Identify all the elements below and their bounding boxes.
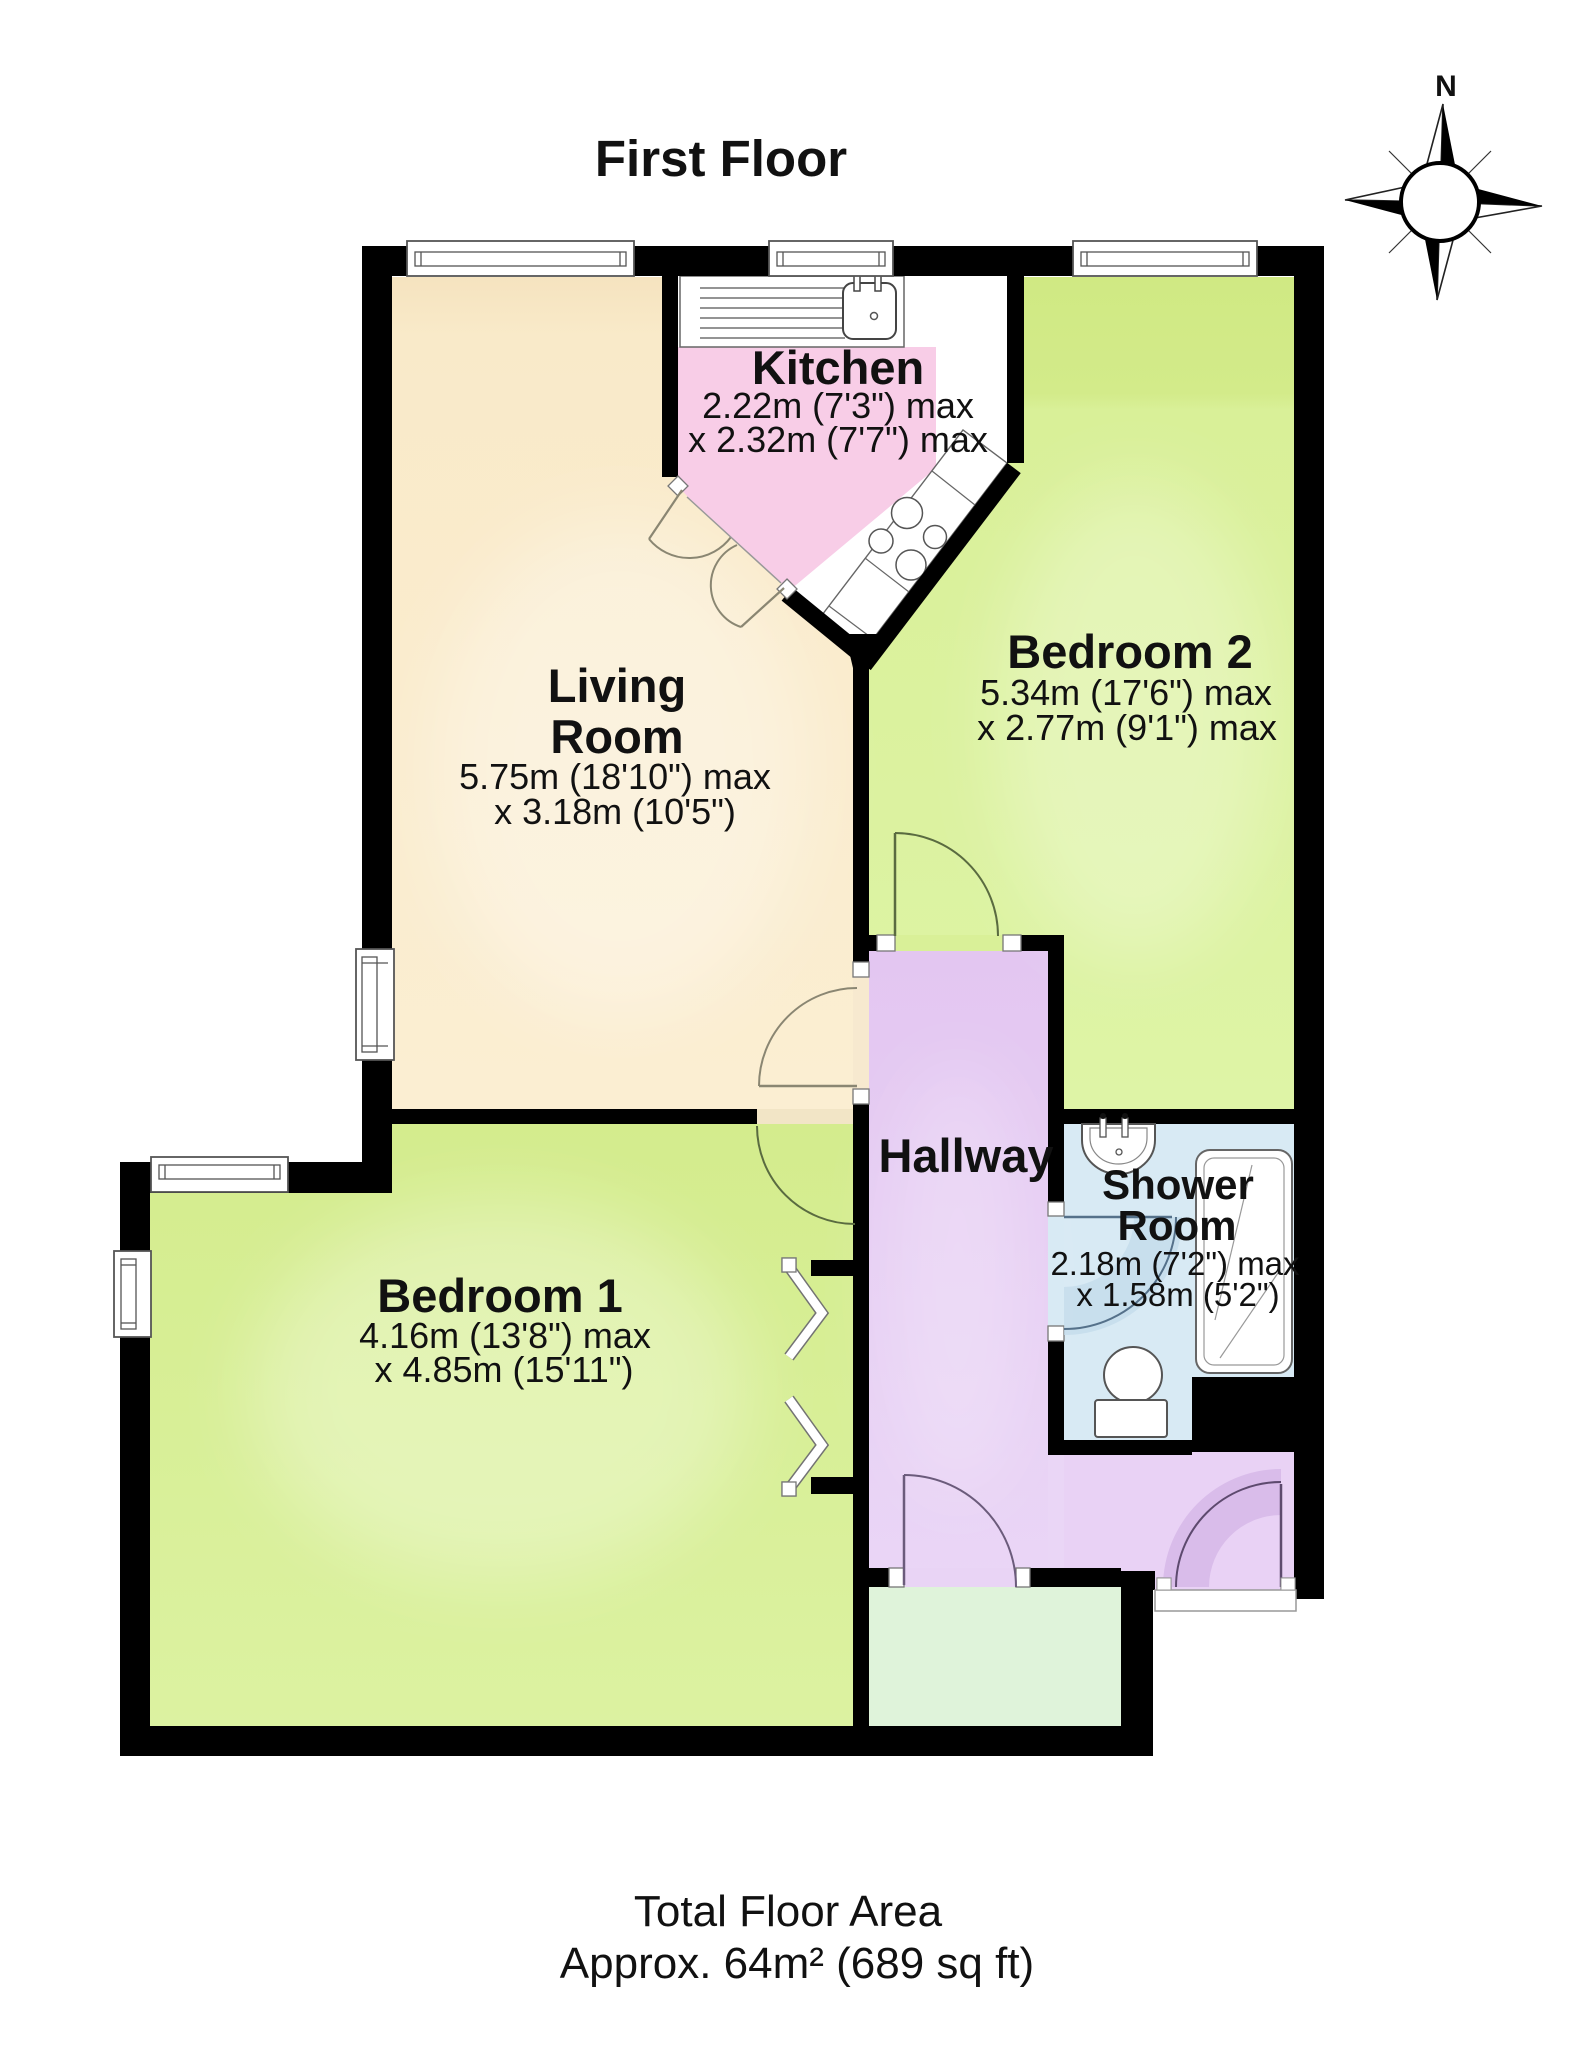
svg-text:x 2.32m (7'7") max: x 2.32m (7'7") max — [688, 419, 988, 460]
svg-text:x 2.77m (9'1") max: x 2.77m (9'1") max — [977, 707, 1277, 748]
svg-text:x 3.18m (10'5"): x 3.18m (10'5") — [494, 791, 736, 832]
svg-text:x 1.58m (5'2"): x 1.58m (5'2") — [1076, 1276, 1279, 1313]
svg-text:Hallway: Hallway — [878, 1129, 1053, 1182]
svg-text:Living: Living — [548, 659, 686, 712]
svg-text:Room: Room — [1118, 1202, 1237, 1249]
svg-text:Approx. 64m² (689 sq ft): Approx. 64m² (689 sq ft) — [560, 1939, 1034, 1988]
svg-text:N: N — [1435, 70, 1457, 103]
svg-text:x 4.85m (15'11"): x 4.85m (15'11") — [374, 1349, 633, 1390]
svg-text:Total Floor Area: Total Floor Area — [634, 1887, 943, 1936]
svg-text:Shower: Shower — [1102, 1161, 1254, 1208]
svg-text:Bedroom 2: Bedroom 2 — [1007, 625, 1253, 678]
svg-text:First Floor: First Floor — [595, 130, 847, 187]
